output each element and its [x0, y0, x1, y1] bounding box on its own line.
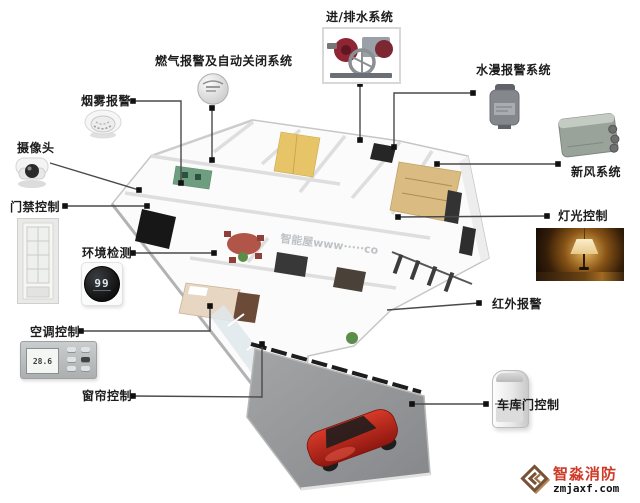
environment-reading: 99	[93, 277, 110, 291]
label-camera: 摄像头	[17, 141, 55, 155]
brand-watermark: 智淼消防 zmjaxf.com	[519, 462, 619, 498]
ac-temperature: 28.6	[33, 357, 52, 366]
label-door-access: 门禁控制	[10, 200, 60, 214]
label-fresh-air: 新风系统	[571, 165, 621, 179]
label-lighting: 灯光控制	[558, 209, 608, 223]
connector-infrared	[387, 303, 479, 310]
label-infrared: 红外报警	[492, 297, 542, 311]
connector-ac	[81, 306, 210, 331]
thermostat-dial: 99	[84, 266, 120, 302]
label-ac: 空调控制	[30, 325, 80, 339]
camera-image	[13, 155, 51, 189]
environment-detector-image: 99	[81, 262, 123, 306]
connector-endpoints	[62, 81, 561, 407]
brand-logo-icon	[519, 462, 551, 498]
ac-screen: 28.6	[26, 348, 59, 374]
label-smoke-alarm: 烟雾报警	[81, 94, 131, 108]
water-pump-image	[322, 27, 401, 84]
lamp-photo	[536, 228, 624, 281]
connector-smoke	[133, 101, 181, 183]
connector-lighting	[398, 216, 547, 217]
brand-site: zmjaxf.com	[553, 483, 619, 494]
label-curtain: 窗帘控制	[82, 389, 132, 403]
connector-flood	[394, 93, 473, 147]
label-water-supply: 进/排水系统	[326, 10, 393, 24]
label-flood-alarm: 水漫报警系统	[476, 63, 551, 77]
label-garage-door: 车库门控制	[497, 398, 560, 412]
flood-alarm-image	[486, 83, 523, 130]
ac-panel-image: 28.6	[20, 341, 97, 379]
label-environment: 环境检测	[82, 246, 132, 260]
connector-curtain	[133, 344, 262, 397]
brand-name: 智淼消防	[553, 467, 619, 482]
label-gas-alarm: 燃气报警及自动关闭系统	[155, 54, 293, 68]
smoke-detector-image	[84, 109, 122, 140]
gas-detector-image	[197, 72, 229, 106]
ac-buttons	[67, 347, 91, 373]
fresh-air-unit-image	[556, 106, 624, 160]
smart-home-diagram: 智能屋www·····co	[0, 0, 640, 503]
door-image	[17, 218, 59, 304]
connector-camera	[50, 163, 139, 190]
